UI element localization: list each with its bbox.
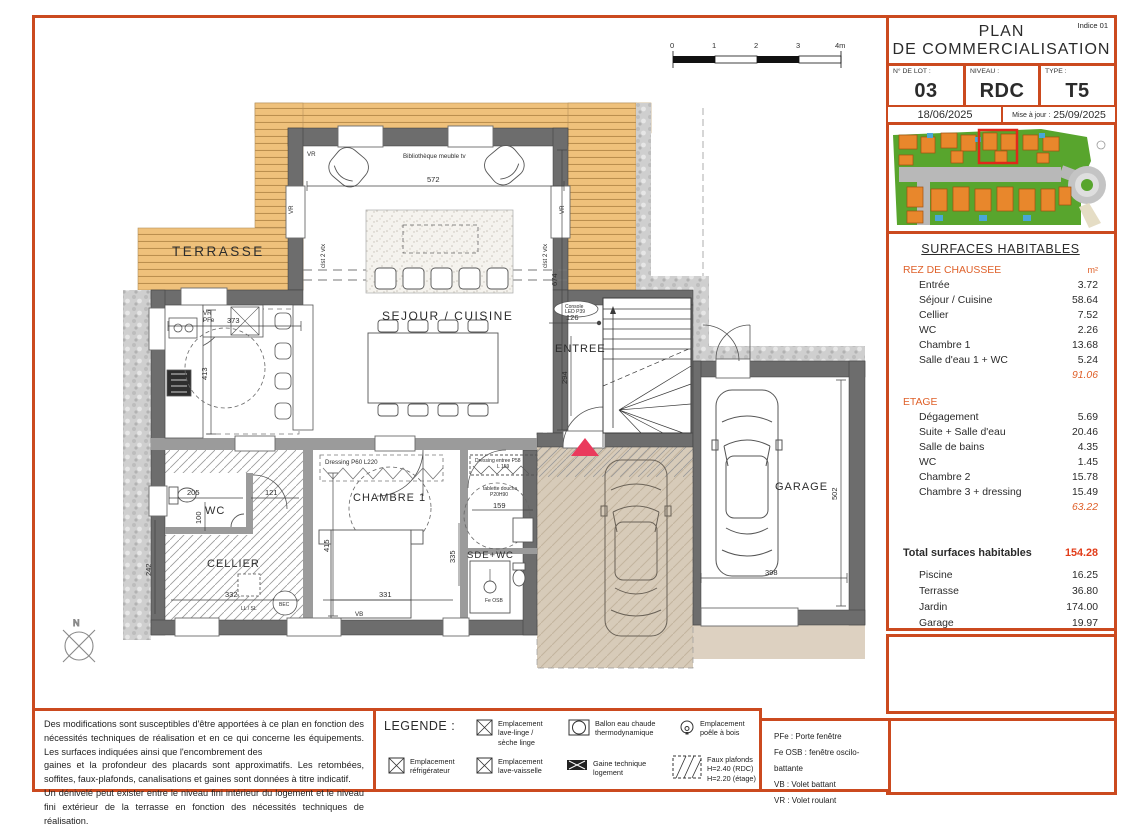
disclaimer-box: Des modifications sont susceptibles d'êt… [32, 708, 376, 792]
etage-header-row: ETAGE [903, 395, 1098, 410]
row-label: Terrasse [903, 584, 959, 600]
scale-3: 3 [796, 41, 800, 50]
north-arrow-icon: N [63, 618, 95, 662]
niveau-label: NIVEAU : [970, 68, 999, 75]
row-label: Jardin [903, 600, 947, 616]
ann-clst-left: clst 2 vtx [320, 243, 327, 268]
dim-126: 126 [566, 313, 579, 322]
table-row: Suite + Salle d'eau20.46 [903, 425, 1098, 440]
ann-llsl: LL / SL [241, 606, 257, 612]
legend-item: Emplacement lave-vaisselle [476, 757, 543, 776]
ann-vb: VB [355, 611, 363, 618]
legend-item-label: Ballon eau chaude thermodynamique [595, 719, 655, 738]
row-value: 3.72 [1078, 278, 1098, 293]
abbrev-pfe: PFe : Porte fenêtre [774, 729, 888, 745]
legend-box: LEGENDE : Emplacement lave-linge / sèche… [373, 708, 762, 792]
total-row: Total surfaces habitables 154.28 [903, 545, 1098, 562]
legend-item-label: Faux plafonds H=2.40 (RDC) H=2.20 (étage… [707, 755, 756, 783]
label-terrasse: TERRASSE [172, 244, 265, 259]
label-sejour: SEJOUR / CUISINE [382, 309, 513, 323]
row-label: Dégagement [903, 410, 979, 425]
row-label: Piscine [903, 568, 953, 584]
false-ceiling-icon [672, 755, 702, 779]
empty-panel-1 [886, 634, 1117, 714]
dim-100: 100 [194, 511, 203, 524]
water-heater-icon [568, 719, 590, 736]
table-row: Chambre 113.68 [903, 338, 1098, 353]
label-sde: SDE+WC [467, 550, 514, 561]
row-value: 2.26 [1078, 323, 1098, 338]
row-value: 36.80 [1072, 584, 1098, 600]
label-chambre1: CHAMBRE 1 [353, 492, 426, 504]
row-value: 20.46 [1072, 425, 1098, 440]
etage-header: ETAGE [903, 395, 937, 410]
table-row: Dégagement5.69 [903, 410, 1098, 425]
legend-item: Emplacement poêle à bois [679, 719, 745, 738]
dishwasher-icon [476, 757, 493, 774]
indice-label: Indice 01 [1078, 21, 1108, 30]
scale-bar: 0 1 2 3 4m [670, 41, 845, 68]
table-row: WC1.45 [903, 455, 1098, 470]
legend-item: Emplacement lave-linge / sèche linge [476, 719, 543, 747]
ann-dressing2b: L 159 [497, 464, 510, 470]
bed [319, 530, 423, 618]
rdc-header-row: REZ DE CHAUSSEE m² [903, 263, 1098, 278]
site-plan-drawing [891, 127, 1112, 229]
total-label: Total surfaces habitables [903, 545, 1032, 562]
table-row: Piscine16.25 [903, 568, 1098, 584]
dim-294: 294 [560, 371, 569, 384]
table-row: Salle de bains4.35 [903, 440, 1098, 455]
surfaces-title: SURFACES HABITABLES [903, 242, 1098, 256]
row-value: 16.25 [1072, 568, 1098, 584]
page-frame: TERRASSE SEJOUR / CUISINE ENTREE WC CELL… [32, 15, 1117, 792]
row-label: Salle de bains [903, 440, 984, 455]
dining-table [368, 320, 498, 416]
date-value: 18/06/2025 [917, 109, 972, 121]
armchair-right [480, 141, 529, 190]
scale-0: 0 [670, 41, 674, 50]
niveau-value: RDC [966, 80, 1038, 103]
stairs [603, 298, 691, 433]
label-garage: GARAGE [775, 481, 828, 493]
row-value: 1.45 [1078, 455, 1098, 470]
row-label: Chambre 2 [903, 470, 970, 485]
dim-332: 332 [225, 590, 238, 599]
ann-tablette2: P20H90 [490, 492, 508, 498]
title-block: Indice 01 PLAN DE COMMERCIALISATION [886, 15, 1117, 66]
scale-1: 1 [712, 41, 716, 50]
total-value: 154.28 [1065, 545, 1098, 562]
table-row: Chambre 215.78 [903, 470, 1098, 485]
row-value: 15.78 [1072, 470, 1098, 485]
north-label: N [73, 618, 80, 628]
dim-242: 242 [144, 563, 153, 576]
table-row: Jardin174.00 [903, 600, 1098, 616]
type-cell: TYPE : T5 PMR [1038, 63, 1117, 108]
dim-331: 331 [379, 590, 392, 599]
ann-bec: BEC [279, 602, 290, 608]
label-cellier: CELLIER [207, 558, 260, 570]
ann-vr-top: VR [307, 151, 316, 158]
unit-label: m² [1088, 263, 1099, 278]
dim-674: 674 [550, 273, 559, 286]
legend-item-label: Emplacement lave-vaisselle [498, 757, 543, 776]
etage-subtotal: 63.22 [903, 500, 1098, 515]
maj-label: Mise à jour : [1012, 112, 1050, 119]
maj-value: 25/09/2025 [1053, 109, 1106, 121]
scale-4m: 4m [835, 41, 845, 50]
row-value: 13.68 [1072, 338, 1098, 353]
dim-121: 121 [265, 488, 278, 497]
scale-2: 2 [754, 41, 758, 50]
disclaimer-p2: gaines et la profondeur des placards son… [44, 759, 364, 787]
row-value: 4.35 [1078, 440, 1098, 455]
row-label: Garage [903, 616, 954, 632]
abbreviations-box: PFe : Porte fenêtre Fe OSB : fenêtre osc… [759, 718, 891, 792]
washer-icon [476, 719, 493, 736]
dim-dot [597, 321, 601, 325]
abbrev-vb: VB : Volet battant [774, 777, 888, 793]
ann-vr-left: VR [288, 205, 295, 214]
legend-title: LEGENDE : [384, 719, 455, 733]
dim-205: 205 [187, 488, 200, 497]
table-row: Cellier7.52 [903, 308, 1098, 323]
ann-vr-right: VR [559, 205, 566, 214]
niveau-cell: NIVEAU : RDC [963, 63, 1041, 108]
label-wc: WC [205, 505, 225, 517]
dim-415: 415 [322, 539, 331, 552]
table-row: Entrée3.72 [903, 278, 1098, 293]
ann-feosb: Fe OSB [485, 598, 503, 604]
row-label: Cellier [903, 308, 948, 323]
table-row: Séjour / Cuisine58.64 [903, 293, 1098, 308]
legend-item: Faux plafonds H=2.40 (RDC) H=2.20 (étage… [672, 755, 756, 783]
duct-icon [566, 759, 588, 771]
car-garage [712, 390, 782, 576]
kitchen-island [366, 210, 513, 293]
row-value: 58.64 [1072, 293, 1098, 308]
dim-502: 502 [830, 487, 839, 500]
row-value: 5.24 [1078, 353, 1098, 368]
rdc-header: REZ DE CHAUSSEE [903, 263, 1001, 278]
table-row: WC2.26 [903, 323, 1098, 338]
floor-plan-page: { "page": {"indice": "Indice 01", "title… [0, 0, 1148, 800]
row-label: WC [903, 455, 936, 470]
dim-572: 572 [427, 175, 440, 184]
table-row: Garage19.97 [903, 616, 1098, 632]
row-label: Suite + Salle d'eau [903, 425, 1006, 440]
legend-item: Gaine technique logement [566, 759, 646, 778]
ann-clst-right: clst 2 vtx [542, 243, 549, 268]
label-entree: ENTREE [555, 343, 606, 355]
row-value: 7.52 [1078, 308, 1098, 323]
legend-item: Emplacement réfrigérateur [388, 757, 455, 776]
row-value: 15.49 [1072, 485, 1098, 500]
row-label: Salle d'eau 1 + WC [903, 353, 1008, 368]
floor-plan-drawing: TERRASSE SEJOUR / CUISINE ENTREE WC CELL… [35, 18, 888, 708]
type-label: TYPE : [1045, 68, 1067, 75]
disclaimer-p1: Des modifications sont susceptibles d'êt… [44, 718, 364, 759]
lot-cell: N° DE LOT : 03 [886, 63, 966, 108]
dim-413: 413 [200, 367, 209, 380]
row-label: Chambre 3 + dressing [903, 485, 1022, 500]
dim-373: 373 [227, 316, 240, 325]
legend-item-label: Emplacement lave-linge / sèche linge [498, 719, 543, 747]
ann-pfe: PFe [203, 317, 215, 324]
ann-vr-kitchen: VR [203, 310, 212, 317]
row-label: Entrée [903, 278, 950, 293]
legend-item-label: Emplacement poêle à bois [700, 719, 745, 738]
lot-label: N° DE LOT : [893, 68, 931, 75]
row-label: Chambre 1 [903, 338, 970, 353]
row-label: WC [903, 323, 936, 338]
dim-398: 398 [765, 568, 778, 577]
row-value: 19.97 [1072, 616, 1098, 632]
dim-335: 335 [448, 550, 457, 563]
dim-159: 159 [493, 501, 506, 510]
row-value: 174.00 [1066, 600, 1098, 616]
surfaces-table: SURFACES HABITABLES REZ DE CHAUSSEE m² E… [886, 231, 1117, 631]
lot-value: 03 [889, 80, 963, 103]
abbrev-feosb: Fe OSB : fenêtre oscilo-battante [774, 745, 888, 777]
row-label: Séjour / Cuisine [903, 293, 992, 308]
doc-title-line2: DE COMMERCIALISATION [889, 41, 1114, 59]
table-row: Terrasse36.80 [903, 584, 1098, 600]
empty-panel-2 [886, 718, 1117, 795]
fridge-icon [388, 757, 405, 774]
abbrev-vr: VR : Volet roulant [774, 793, 888, 809]
table-row: Chambre 3 + dressing15.49 [903, 485, 1098, 500]
site-plan-thumbnail [886, 122, 1117, 234]
ann-dressing1: Dressing P60 L220 [325, 459, 378, 466]
legend-item-label: Gaine technique logement [593, 759, 646, 778]
table-row: Salle d'eau 1 + WC5.24 [903, 353, 1098, 368]
row-value: 5.69 [1078, 410, 1098, 425]
wood-stove-icon [679, 719, 695, 736]
disclaimer-p3: Un dénivelé peut exister entre le niveau… [44, 787, 364, 828]
legend-item: Ballon eau chaude thermodynamique [568, 719, 655, 738]
armchair-left [324, 143, 373, 192]
legend-item-label: Emplacement réfrigérateur [410, 757, 455, 776]
rdc-subtotal: 91.06 [903, 368, 1098, 383]
ann-biblio: Bibliothèque meuble tv [403, 153, 467, 160]
